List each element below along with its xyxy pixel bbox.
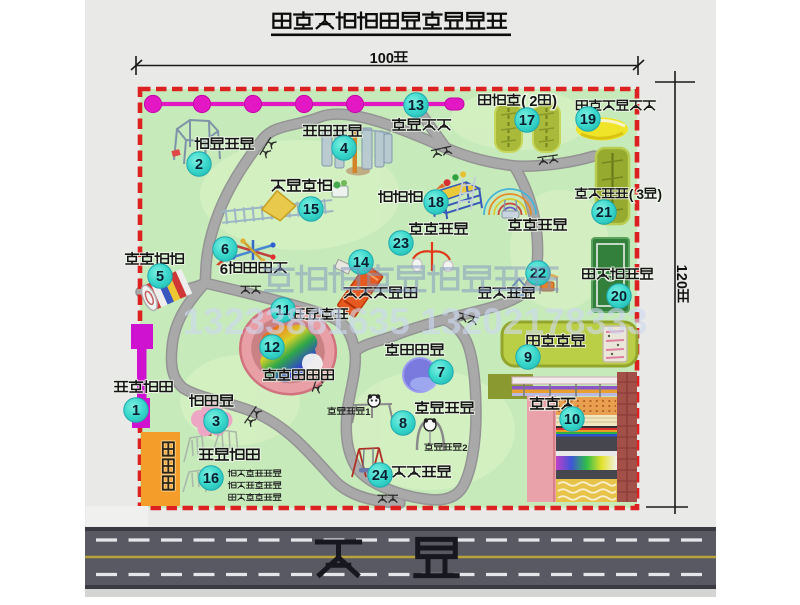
svg-text:(3: (3 — [629, 187, 645, 202]
svg-text:): ) — [552, 94, 557, 110]
svg-text:21: 21 — [596, 205, 612, 221]
svg-text:2: 2 — [462, 443, 467, 454]
svg-text:1: 1 — [365, 407, 371, 418]
svg-text:9: 9 — [524, 350, 532, 366]
svg-text:17: 17 — [519, 113, 535, 129]
svg-text:6: 6 — [220, 261, 228, 278]
svg-text:12: 12 — [264, 340, 280, 356]
svg-text:24: 24 — [372, 468, 388, 484]
svg-text:13233861635 13202178333: 13233861635 13202178333 — [183, 301, 648, 342]
svg-text:100: 100 — [370, 51, 394, 67]
svg-text:23: 23 — [393, 236, 409, 252]
svg-text:120: 120 — [673, 265, 689, 289]
svg-text:19: 19 — [580, 112, 596, 128]
svg-text:6: 6 — [221, 242, 229, 258]
svg-text:10: 10 — [564, 412, 580, 428]
svg-text:18: 18 — [428, 195, 444, 211]
svg-text:7: 7 — [437, 365, 445, 381]
svg-text:15: 15 — [303, 202, 319, 218]
svg-text:2: 2 — [195, 157, 203, 173]
svg-text:16: 16 — [203, 471, 219, 487]
svg-text:1: 1 — [132, 403, 140, 419]
svg-text:8: 8 — [399, 416, 407, 432]
svg-text:13: 13 — [408, 98, 424, 114]
svg-text:3: 3 — [212, 414, 220, 430]
svg-text:5: 5 — [156, 269, 164, 285]
svg-text:4: 4 — [340, 141, 348, 157]
svg-text:): ) — [658, 187, 663, 202]
